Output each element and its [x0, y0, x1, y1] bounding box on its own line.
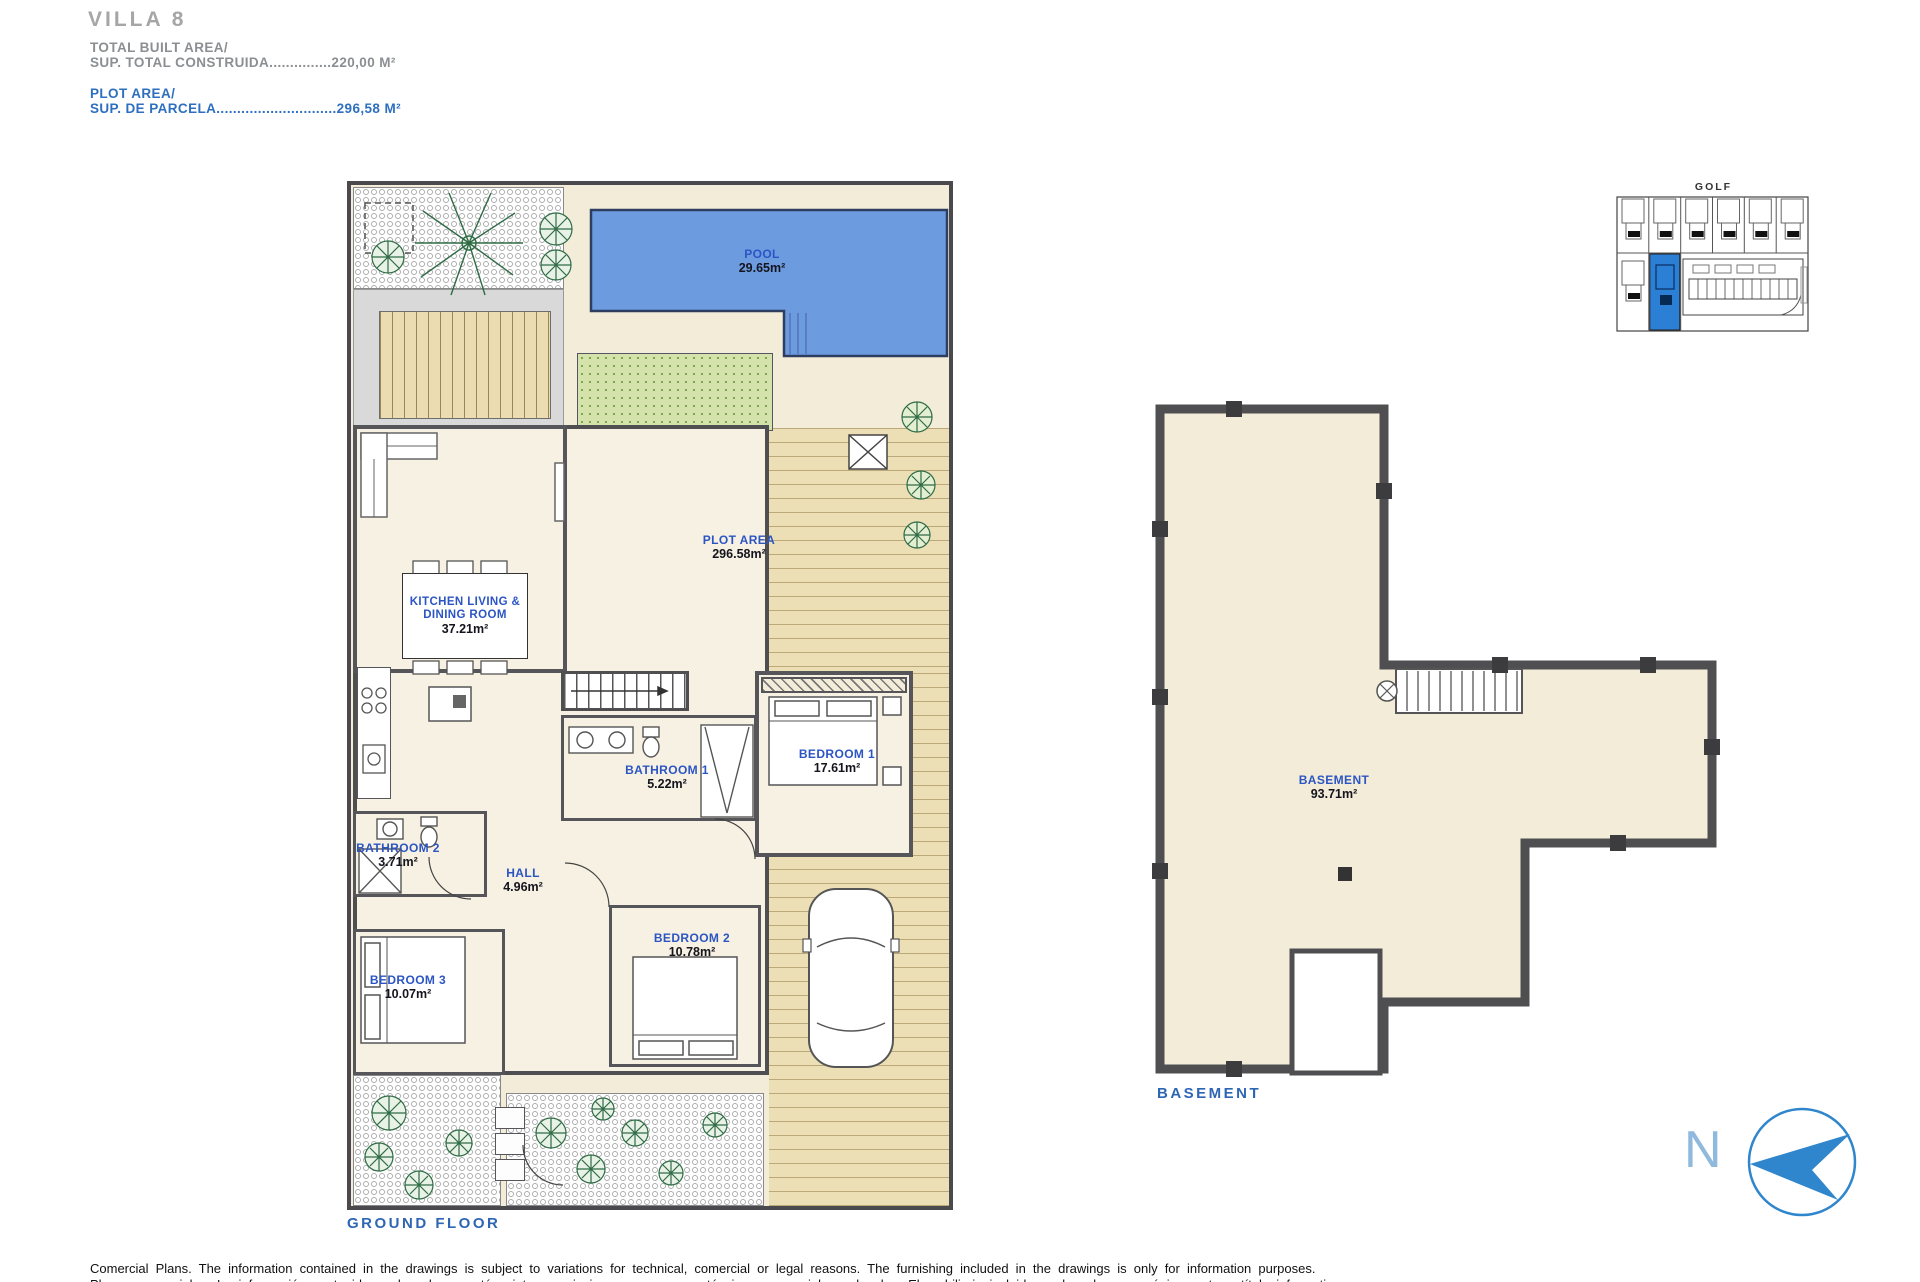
- disclaimer: Comercial Plans. The information contain…: [90, 1261, 1617, 1282]
- disclaimer-line1: Comercial Plans. The information contain…: [90, 1261, 1617, 1277]
- basement-stairs: [1377, 669, 1522, 713]
- page-title: VILLA 8: [88, 8, 186, 32]
- room-bedroom-2: [609, 905, 761, 1067]
- plot-area-value: SUP. DE PARCELA.........................…: [90, 101, 401, 116]
- site-plan-drawing: [1615, 195, 1812, 333]
- room-name: BATHROOM 1: [592, 763, 742, 777]
- room-area: 93.71m²: [1259, 787, 1409, 801]
- room-bedroom-3: [353, 929, 505, 1075]
- hall-label: HALL 4.96m²: [448, 866, 598, 894]
- lawn: [577, 353, 773, 431]
- staircase: [561, 671, 689, 711]
- neighbor-building: [1683, 259, 1807, 315]
- plot-area-label: PLOT AREA/: [90, 86, 175, 101]
- gravel-garden-bottom-right: [506, 1093, 764, 1206]
- basement-courtyard: [1292, 951, 1380, 1073]
- ground-floor-caption: GROUND FLOOR: [347, 1215, 500, 1232]
- pool-label: POOL 29.65m²: [687, 247, 837, 275]
- bathroom2-label: BATHROOM 2 3.71m²: [347, 841, 473, 869]
- room-name: HALL: [448, 866, 598, 880]
- room-name: BATHROOM 2: [347, 841, 473, 855]
- kitchen-counter: [357, 667, 391, 799]
- room-area: 4.96m²: [448, 880, 598, 894]
- basement-column: [1338, 867, 1352, 881]
- ground-floor-plan: POOL 29.65m² PLOT AREA 296.58m² BATHROOM…: [347, 181, 953, 1210]
- north-compass: N: [1676, 1090, 1886, 1235]
- basement-caption: BASEMENT: [1157, 1085, 1261, 1102]
- room-name: PLOT AREA: [664, 533, 814, 547]
- room-area: 5.22m²: [592, 777, 742, 791]
- room-area: 296.58m²: [664, 547, 814, 561]
- room-area: 10.07m²: [347, 987, 483, 1001]
- plot-area-plan-label: PLOT AREA 296.58m²: [664, 533, 814, 561]
- deck-steps: [379, 311, 551, 419]
- compass-arrow-icon: [1750, 1134, 1850, 1200]
- utility-unit: [495, 1107, 525, 1129]
- room-area: 10.78m²: [617, 945, 767, 959]
- room-name: BEDROOM 3: [347, 973, 483, 987]
- bedroom3-label: BEDROOM 3 10.07m²: [347, 973, 483, 1001]
- room-name: BEDROOM 1: [762, 747, 912, 761]
- dining-table: KITCHEN LIVING & DINING ROOM 37.21m²: [402, 573, 528, 659]
- bathroom1-label: BATHROOM 1 5.22m²: [592, 763, 742, 791]
- bedroom2-label: BEDROOM 2 10.78m²: [617, 931, 767, 959]
- room-name: KITCHEN LIVING & DINING ROOM: [403, 596, 527, 622]
- gravel-garden-bottom-left: [353, 1075, 501, 1206]
- built-area-label: TOTAL BUILT AREA/: [90, 40, 228, 55]
- room-name: BEDROOM 2: [617, 931, 767, 945]
- built-area-value: SUP. TOTAL CONSTRUIDA...............220,…: [90, 55, 396, 70]
- utility-unit: [495, 1159, 525, 1181]
- room-area: 17.61m²: [762, 761, 912, 775]
- room-area: 37.21m²: [403, 622, 527, 636]
- site-plan-title: GOLF: [1615, 181, 1812, 193]
- site-key-plan: GOLF: [1615, 181, 1812, 333]
- basement-plan: [1140, 395, 1740, 1095]
- room-name: POOL: [687, 247, 837, 261]
- bedroom1-label: BEDROOM 1 17.61m²: [762, 747, 912, 775]
- pool: [591, 210, 947, 356]
- room-name: BASEMENT: [1259, 773, 1409, 787]
- gravel-garden-top: [353, 187, 564, 289]
- room-area: 29.65m²: [687, 261, 837, 275]
- wardrobe: [761, 677, 907, 693]
- basement-room-label: BASEMENT 93.71m²: [1259, 773, 1409, 801]
- basement-outline: [1160, 409, 1712, 1069]
- compass-arrow: [1712, 1090, 1882, 1235]
- utility-unit: [495, 1133, 525, 1155]
